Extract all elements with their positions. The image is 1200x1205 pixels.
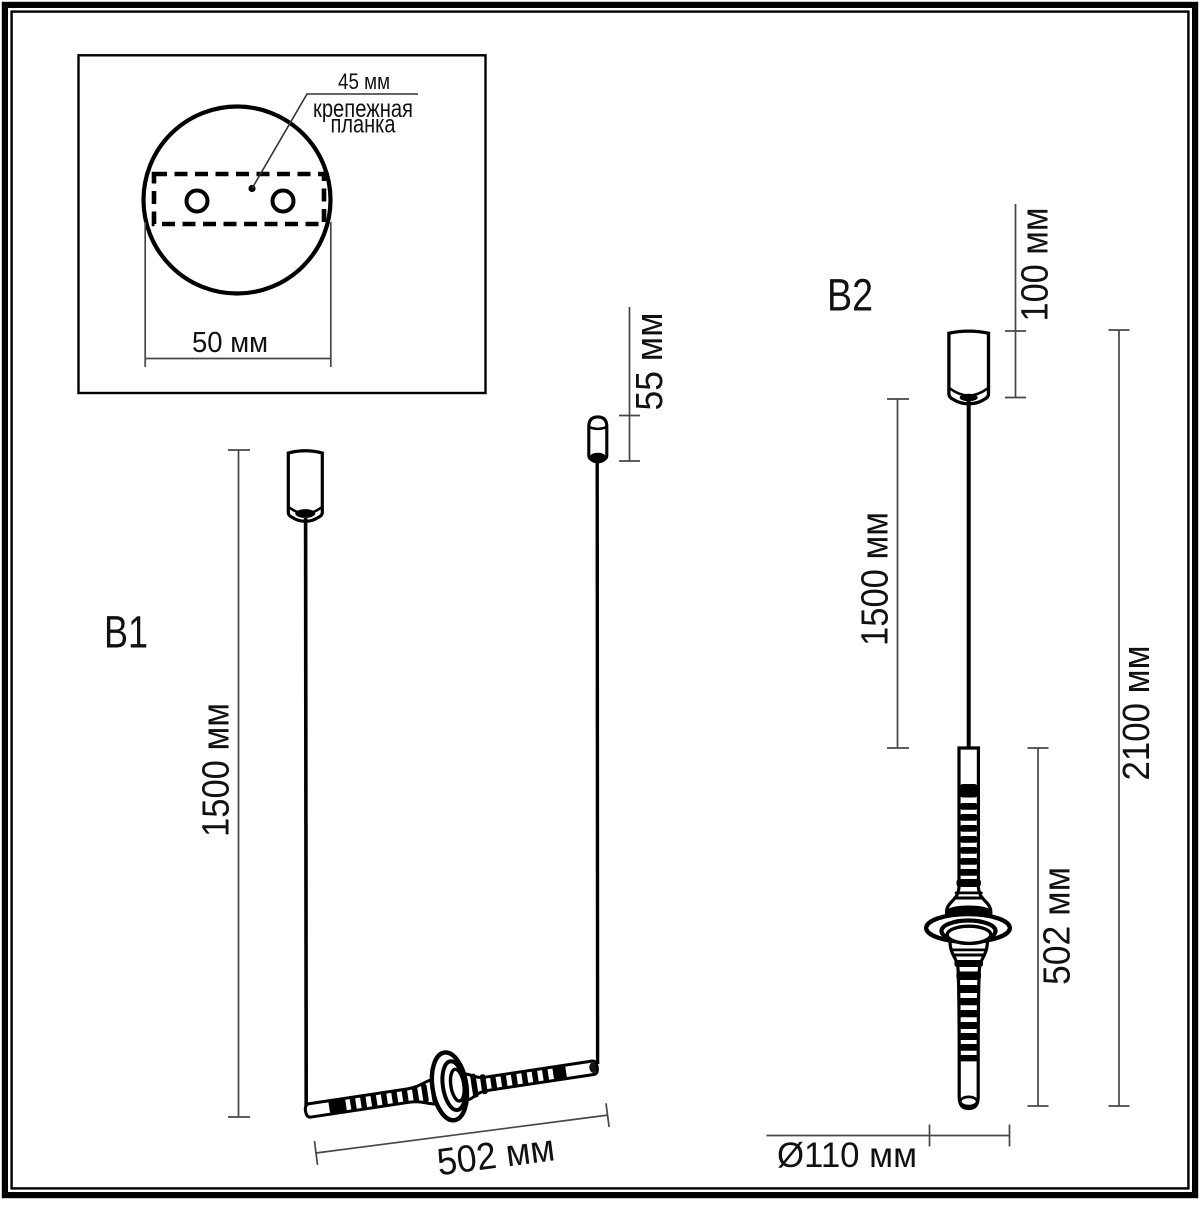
svg-text:Ø110 мм: Ø110 мм: [777, 1136, 917, 1175]
svg-text:502 мм: 502 мм: [1037, 867, 1079, 985]
svg-text:1500 мм: 1500 мм: [196, 703, 238, 837]
svg-text:50 мм: 50 мм: [192, 327, 268, 359]
svg-text:55 мм: 55 мм: [629, 313, 671, 411]
svg-text:100 мм: 100 мм: [1015, 208, 1057, 322]
svg-text:45 мм: 45 мм: [338, 69, 390, 94]
svg-text:2100 мм: 2100 мм: [1116, 646, 1158, 781]
svg-text:планка: планка: [331, 111, 396, 139]
svg-text:B1: B1: [104, 607, 148, 658]
svg-text:1500 мм: 1500 мм: [855, 512, 897, 646]
svg-text:B2: B2: [827, 270, 873, 321]
